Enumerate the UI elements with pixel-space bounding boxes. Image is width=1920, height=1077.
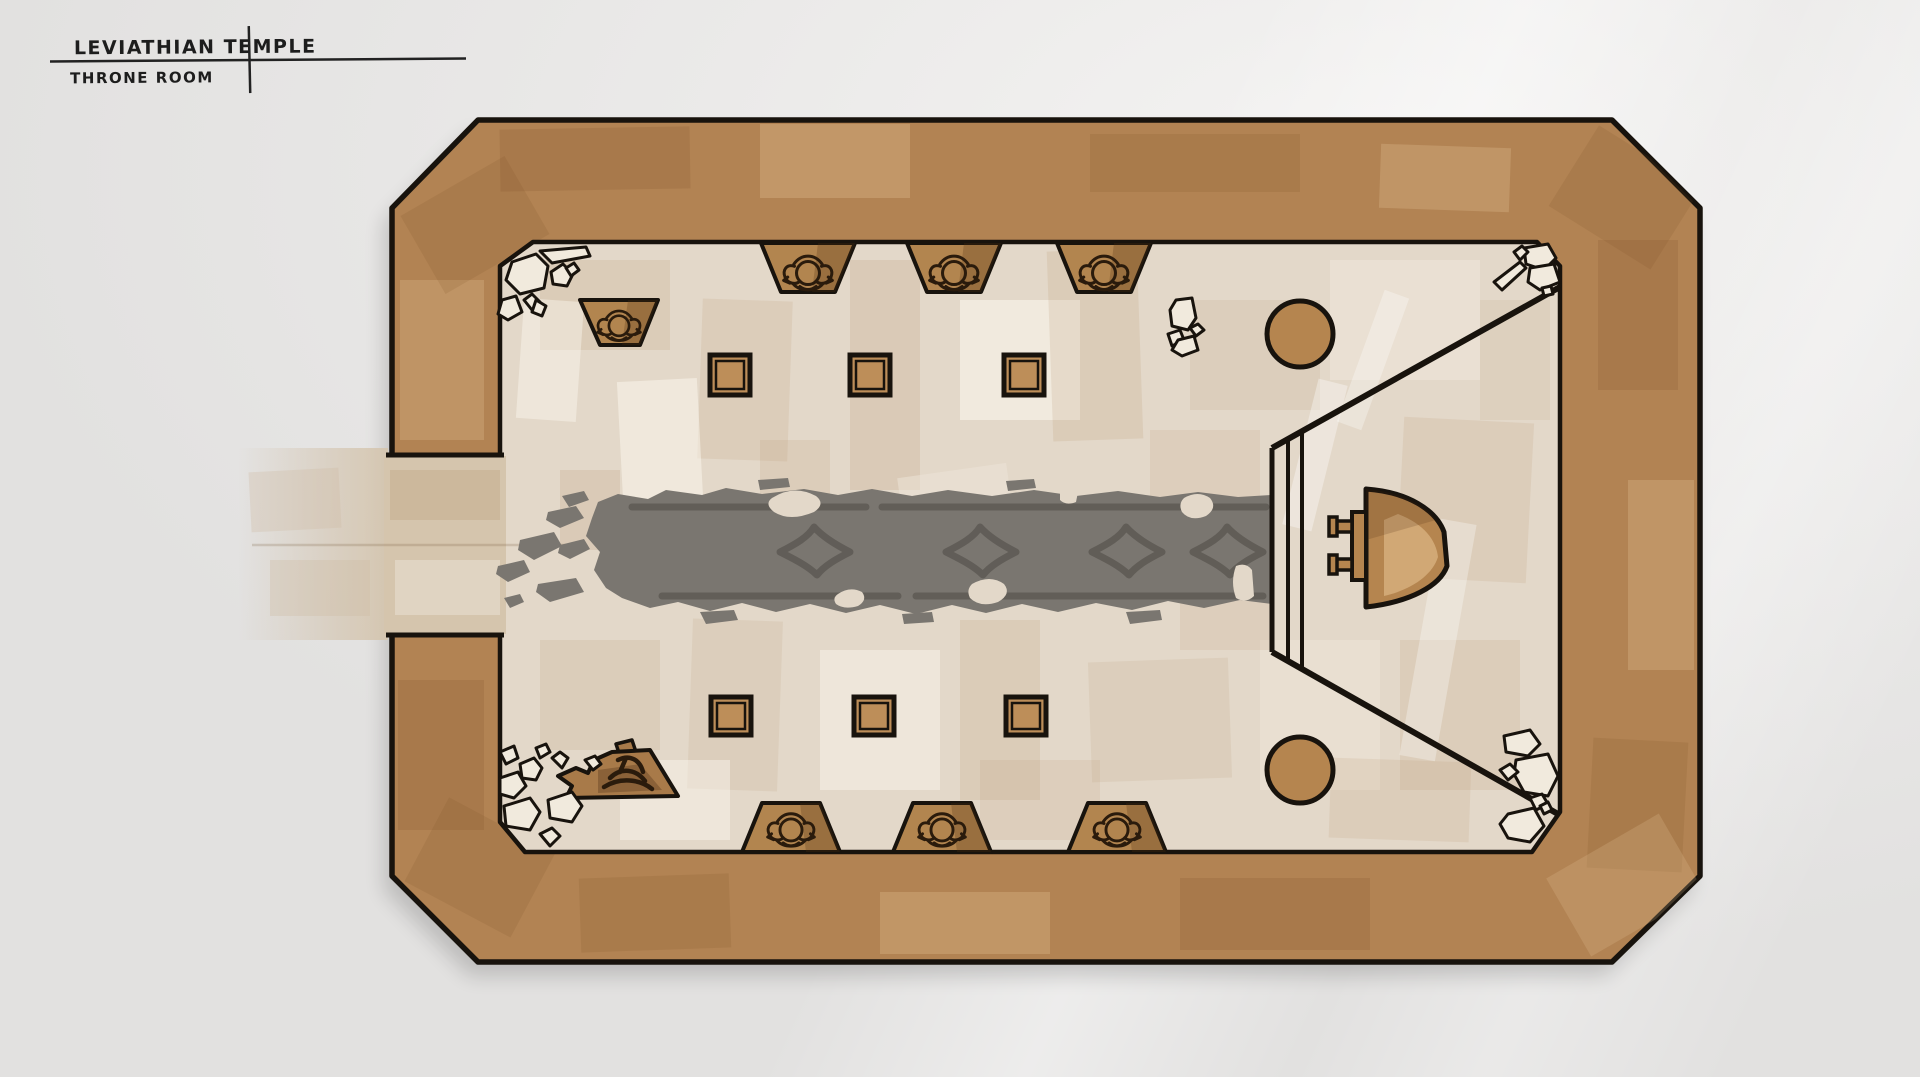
map-subtitle: THRONE ROOM <box>70 68 214 87</box>
map-page: LEVIATHIAN TEMPLE THRONE ROOM <box>0 0 1920 1077</box>
south-alcoves <box>742 803 1166 852</box>
temple-map-canvas: LEVIATHIAN TEMPLE THRONE ROOM <box>0 0 1920 1077</box>
square-pillar <box>710 355 750 395</box>
throne-armrest-knob <box>1329 517 1337 536</box>
square-pillar <box>854 697 894 735</box>
title-divider <box>249 26 250 93</box>
throne-armrest-knob <box>1329 555 1337 574</box>
title-block: LEVIATHIAN TEMPLE THRONE ROOM <box>50 25 466 95</box>
square-pillar <box>850 355 890 395</box>
round-column <box>1267 737 1333 803</box>
square-pillar <box>1006 697 1046 735</box>
square-pillar <box>711 697 751 735</box>
round-column <box>1267 301 1333 367</box>
map-title: LEVIATHIAN TEMPLE <box>74 36 317 60</box>
north-alcoves <box>761 243 1151 292</box>
square-pillar <box>1004 355 1044 395</box>
throne-seat <box>1352 512 1366 580</box>
